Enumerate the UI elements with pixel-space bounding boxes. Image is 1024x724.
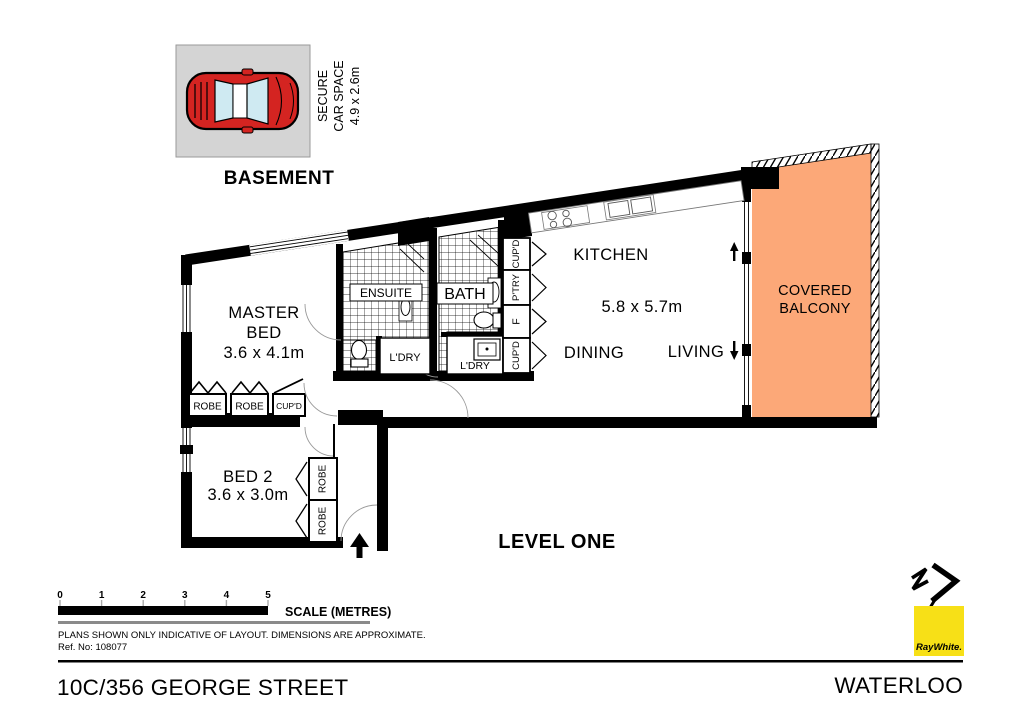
disclaimer-text: PLANS SHOWN ONLY INDICATIVE OF LAYOUT. D… (58, 630, 426, 641)
robe-row: ROBE ROBE CUP'D (189, 379, 305, 416)
master-bed-dims: 3.6 x 4.1m (223, 344, 304, 362)
pantry-label: P'TRY (511, 273, 522, 301)
floorplan-drawing: SECURE CAR SPACE 4.9 x 2.6m BASEMENT COV… (0, 0, 1024, 724)
kitchen-label: KITCHEN (573, 246, 648, 264)
laundry-left: L'DRY (380, 338, 430, 374)
laundry-right-label: L'DRY (460, 360, 490, 372)
raywhite-logo: RayWhite. (914, 606, 964, 656)
robe-vertical-2-label: ROBE (318, 507, 329, 536)
ensuite-label: ENSUITE (360, 286, 412, 300)
closet-column (503, 238, 546, 373)
master-bed-label-line1: MASTER (228, 304, 299, 322)
balcony-label-line1: COVERED (778, 283, 852, 299)
robe-vertical-1-label: ROBE (318, 465, 329, 494)
car-space-label-line2: CAR SPACE (332, 60, 346, 131)
bed2-label: BED 2 (223, 468, 273, 486)
footer-suburb: WATERLOO (834, 673, 963, 698)
level-label: LEVEL ONE (498, 531, 616, 553)
cupboard-bottom-label: CUP'D (511, 341, 522, 370)
basement-label: BASEMENT (224, 168, 335, 189)
cupboard-row-label: CUP'D (276, 401, 302, 411)
footer-rule (58, 660, 963, 663)
dining-label: DINING (564, 344, 624, 362)
scale-tick-3: 3 (182, 590, 188, 601)
ref-number: Ref. No: 108077 (58, 642, 127, 653)
entry-arrow (350, 533, 369, 558)
living-label: LIVING (668, 343, 725, 361)
master-bed-label-line2: BED (246, 324, 281, 342)
cupboard-top-label: CUP'D (511, 239, 522, 268)
floorplan-page: SECURE CAR SPACE 4.9 x 2.6m BASEMENT COV… (0, 0, 1024, 724)
scale-bar: 0 1 2 3 4 5 SCALE (METRES) (57, 590, 391, 624)
laundry-left-label: L'DRY (389, 352, 421, 364)
bed2-dims: 3.6 x 3.0m (207, 486, 288, 504)
car-icon (187, 69, 298, 133)
car-space-diagram: SECURE CAR SPACE 4.9 x 2.6m BASEMENT (176, 45, 362, 189)
scale-tick-0: 0 (57, 590, 63, 601)
scale-tick-2: 2 (140, 590, 146, 601)
living-area-dims: 5.8 x 5.7m (601, 298, 682, 316)
scale-tick-1: 1 (99, 590, 105, 601)
bath-label: BATH (444, 286, 485, 303)
car-space-label-line1: SECURE (316, 70, 330, 122)
car-space-label-line3: 4.9 x 2.6m (348, 67, 362, 125)
robe-row-1-label: ROBE (193, 402, 222, 413)
laundry-right: L'DRY (447, 336, 503, 374)
sliding-door-arrows (730, 242, 739, 360)
raywhite-logo-text: RayWhite. (916, 642, 962, 653)
footer-address: 10C/356 GEORGE STREET (57, 675, 348, 700)
balcony-label-line2: BALCONY (779, 301, 850, 317)
scale-label: SCALE (METRES) (285, 605, 391, 619)
scale-tick-4: 4 (224, 590, 230, 601)
north-arrow-icon (912, 565, 956, 611)
robe-row-2-label: ROBE (235, 402, 264, 413)
bed2-robes (296, 458, 337, 542)
fridge-label: F (510, 318, 522, 324)
scale-tick-5: 5 (265, 590, 271, 601)
